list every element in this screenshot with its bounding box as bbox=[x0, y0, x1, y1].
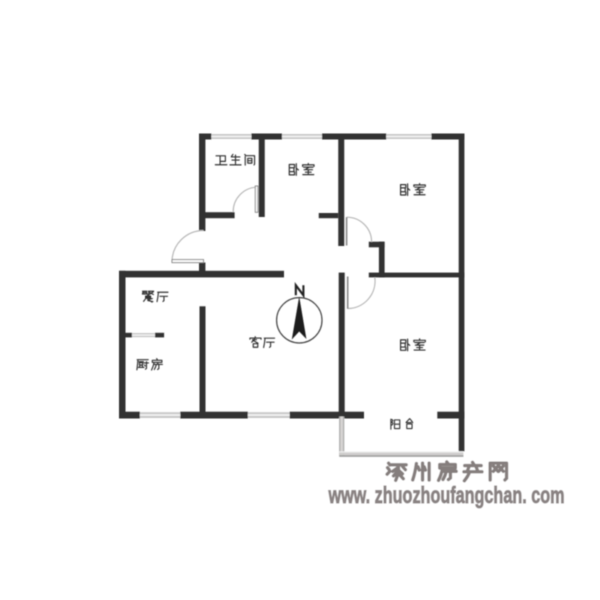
svg-text:www. zhuozhoufangchan. com: www. zhuozhoufangchan. com bbox=[328, 483, 565, 508]
